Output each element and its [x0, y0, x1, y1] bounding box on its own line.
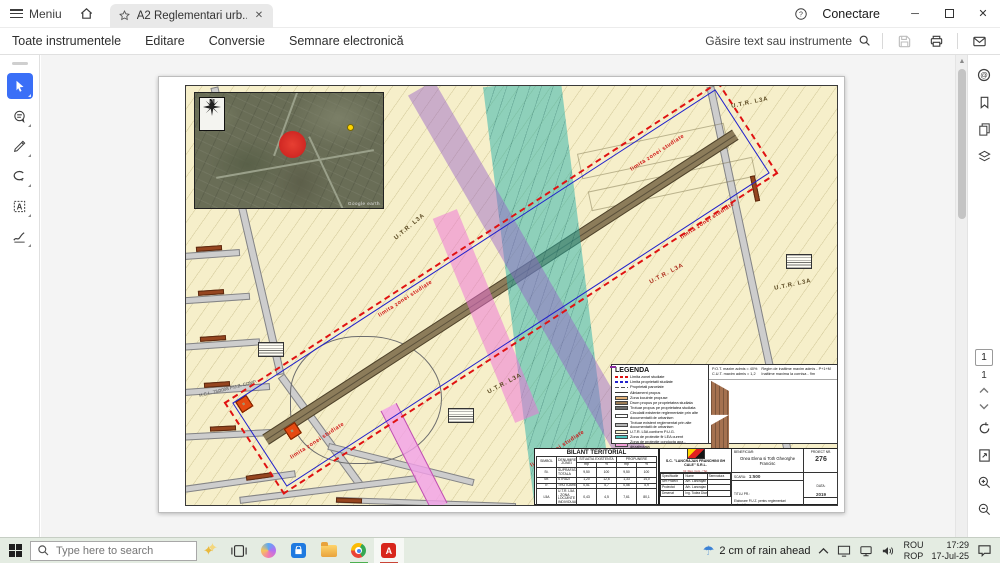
language-indicator[interactable]: ROU ROP	[903, 540, 923, 561]
bilant-cell: 100	[637, 468, 657, 477]
bookmark-icon	[977, 95, 992, 110]
spec-cell: Ing. Todea Diana	[684, 491, 707, 497]
tab-title: A2 Reglementari urb...	[137, 10, 247, 22]
legend-swatch	[615, 381, 628, 383]
legend-swatch	[615, 406, 628, 410]
chevron-up-icon	[979, 387, 989, 394]
meta-cell: DATA:2019 FAZA:P.U.Z. PLANSA NR.A2	[804, 473, 838, 506]
height-regime: Regim de inaltime maxim admis - P+1+M	[761, 367, 830, 371]
bilant-cell: U.T.R. L5A - ZONA LOCUINTE INDIVIDUALE	[557, 489, 577, 506]
project-number: 276	[804, 456, 838, 463]
task-view-button[interactable]	[224, 538, 254, 563]
title-cell: SCARA: 1:500 TITLU PR.: Elaborare P.U.Z.…	[732, 473, 804, 506]
layers-icon	[977, 149, 992, 164]
fit-page-button[interactable]	[972, 443, 996, 467]
date: 17-Jul-25	[931, 551, 969, 561]
plan-sheet: limita zonei studiate limita zonei studi…	[185, 85, 838, 506]
page-thumbnails-button[interactable]	[972, 117, 996, 141]
signatures-cell: SpecificatieNumeSemnaturaSef ProiectArh.…	[660, 473, 732, 506]
spec-row: DesenatIng. Todea Diana	[661, 491, 731, 497]
project-number-cell: PROIECT NR. 276	[804, 449, 838, 472]
speaker-icon[interactable]	[881, 545, 895, 557]
zoom-in-icon	[977, 475, 992, 490]
dimension-table	[258, 342, 284, 357]
bilant-row: St.SUPRAFATA TOTALA9,501009,50100	[537, 468, 657, 477]
help-icon: ?	[794, 7, 808, 21]
compass-star-icon	[203, 98, 221, 116]
acrobat-icon: A	[381, 543, 396, 558]
chrome-icon	[351, 543, 366, 558]
pencil-icon	[13, 139, 27, 153]
start-button[interactable]	[0, 538, 30, 563]
svg-text:?: ?	[799, 11, 803, 18]
cursor-icon	[13, 79, 27, 93]
save-button[interactable]	[893, 34, 915, 49]
find-label: Găsire text sau instrumente	[705, 34, 852, 48]
legend-swatch	[615, 435, 628, 439]
fill-sign-tool[interactable]	[7, 223, 33, 249]
menu-item-edit[interactable]: Editare	[133, 34, 197, 48]
scrollbar-thumb[interactable]	[958, 69, 966, 219]
action-center-icon[interactable]	[977, 544, 992, 557]
bilant-cell: 7,61	[617, 489, 637, 506]
firm-logo	[687, 448, 705, 459]
copilot-icon	[261, 543, 276, 558]
utr-label: U.T.R. L3A	[731, 96, 769, 110]
menu-item-esign[interactable]: Semnare electronică	[277, 34, 416, 48]
previous-page-button[interactable]	[972, 383, 996, 397]
site-marker	[279, 131, 306, 158]
legend-item: Proprietati parcelate	[615, 385, 706, 389]
text-box-icon: A	[12, 199, 27, 214]
svg-text:A: A	[17, 202, 23, 211]
comments-icon: @	[976, 67, 992, 83]
legend-list: LEGENDA Limita zonei studiateLimita prop…	[612, 365, 709, 443]
home-button[interactable]	[72, 0, 102, 28]
close-button[interactable]: ✕	[966, 0, 1000, 28]
weather-icon: ☂	[703, 543, 715, 559]
bilant-header: SIMBOL	[537, 457, 557, 468]
north-compass: N	[199, 97, 225, 131]
store-button[interactable]	[284, 538, 314, 563]
bilant-cell: 9,50	[577, 468, 597, 477]
street-label	[336, 498, 362, 504]
chrome-button[interactable]	[344, 538, 374, 563]
bilant-cell: 80,1	[637, 489, 657, 506]
legend-swatch	[615, 387, 628, 389]
spec-cell	[707, 491, 730, 497]
menu-item-convert[interactable]: Conversie	[197, 34, 277, 48]
search-icon	[37, 544, 50, 557]
menubar-right: Găsire text sau instrumente	[705, 33, 1000, 49]
email-icon	[972, 34, 987, 49]
find-tools-button[interactable]: Găsire text sau instrumente	[705, 34, 872, 48]
urbanism-indicators: P.O.T. maxim admis = 40% C.U.T. maxim ad…	[709, 365, 838, 380]
firm-cell: S.C. "LANCRAJAN FRANCHINI GH CALE" S.R.L…	[660, 449, 732, 472]
windows-taskbar: ✦ A ☂ 2 cm of rain ahead ROU	[0, 537, 1000, 563]
zoom-in-button[interactable]	[972, 470, 996, 494]
chevron-down-icon	[979, 403, 989, 410]
weather-widget[interactable]: ☂ 2 cm of rain ahead	[703, 543, 811, 559]
acrobat-button[interactable]: A	[374, 538, 404, 563]
titlebar: Meniu A2 Reglementari urb... ✕ ? Conecta…	[0, 0, 1000, 28]
legend-swatch	[615, 396, 628, 400]
save-icon	[897, 34, 912, 49]
legend-swatch	[615, 423, 628, 427]
display-icon[interactable]	[837, 545, 851, 557]
add-text-tool[interactable]: A	[7, 193, 33, 219]
bookmarks-panel-button[interactable]	[972, 90, 996, 114]
draw-tool[interactable]	[7, 133, 33, 159]
bilant-cell: SUPRAFATA TOTALA	[557, 468, 577, 477]
left-toolbar: A	[0, 55, 40, 537]
weather-text: 2 cm of rain ahead	[719, 545, 810, 557]
scale-value: 1:500	[749, 474, 761, 479]
bilant-row: L5AU.T.R. L5A - ZONA LOCUINTE INDIVIDUAL…	[537, 489, 657, 506]
select-tool[interactable]	[7, 73, 33, 99]
firm-name: S.C. "LANCRAJAN FRANCHINI GH CALE" S.R.L…	[661, 460, 730, 468]
max-height: Inaltime maxima la cornisa - 9m	[761, 372, 815, 376]
document-tab[interactable]: A2 Reglementari urb... ✕	[110, 4, 273, 28]
pot-value: P.O.T. maxim admis = 40%	[712, 367, 757, 371]
inset-road	[308, 136, 343, 209]
legend-swatch	[615, 443, 628, 447]
titlebar-right: ? Conectare ─ ✕	[794, 0, 1000, 28]
folder-icon	[321, 545, 337, 557]
map-watermark: Google earth	[348, 201, 380, 206]
location-inset-map: N Google earth	[194, 92, 384, 209]
fit-page-icon	[977, 448, 992, 463]
time: 17:29	[931, 540, 969, 550]
rotate-icon	[977, 421, 992, 436]
bilant-cell: L5A	[537, 489, 557, 506]
tray-chevron-icon[interactable]	[818, 547, 829, 555]
layers-panel-button[interactable]	[972, 144, 996, 168]
section-building	[711, 415, 729, 449]
legend-item: Trotuar existent reglementat prin alte d…	[615, 421, 706, 429]
store-icon	[291, 543, 306, 558]
divider	[882, 33, 883, 49]
date-value: 2019	[804, 492, 838, 497]
dimension-table	[786, 254, 812, 269]
beneficiary-name: Onea Elena si Toth Gheorghe Francisc	[734, 456, 801, 466]
help-button[interactable]: ?	[794, 7, 820, 21]
menu-item-all-tools[interactable]: Toate instrumentele	[0, 34, 133, 48]
bilant-cell: 4,5	[597, 489, 617, 506]
right-toolbar: @ 1 1	[967, 55, 1000, 537]
bilant-cell: 9,50	[617, 468, 637, 477]
legend-title: LEGENDA	[615, 367, 706, 374]
comment-icon	[12, 109, 27, 124]
rotate-page-button[interactable]	[972, 416, 996, 440]
taskbar-search[interactable]	[30, 541, 197, 561]
hamburger-icon	[10, 9, 23, 18]
section-building	[711, 381, 729, 415]
search-highlights-icon[interactable]: ✦	[203, 543, 214, 559]
print-icon	[929, 34, 944, 49]
windows-logo-icon	[9, 544, 22, 557]
legend-item: Circulatii existente reglementate prin a…	[615, 411, 706, 419]
copilot-button[interactable]	[254, 538, 284, 563]
legend-swatch	[615, 401, 628, 405]
search-icon	[858, 34, 872, 48]
legend-swatch	[615, 392, 628, 394]
page-total: 1	[968, 370, 1000, 381]
signature-icon	[12, 229, 27, 244]
minimize-button[interactable]: ─	[898, 0, 932, 28]
legend-panel: LEGENDA Limita zonei studiateLimita prop…	[611, 364, 838, 444]
maximize-button[interactable]	[932, 0, 966, 28]
clock[interactable]: 17:29 17-Jul-25	[931, 540, 969, 561]
legend-swatch	[615, 376, 628, 378]
legend-swatch	[615, 414, 628, 418]
pdf-page[interactable]: limita zonei studiate limita zonei studi…	[158, 76, 845, 513]
land-balance-table: BILANT TERITORIAL SIMBOLDENUMIREA ZONEIS…	[534, 448, 659, 505]
utr-label: U.T.R. L3A	[393, 213, 426, 242]
task-view-icon	[231, 544, 247, 558]
poi-marker	[347, 124, 354, 131]
pages-icon	[977, 122, 992, 137]
search-input[interactable]	[56, 545, 166, 557]
network-icon[interactable]	[859, 545, 873, 557]
page-number-input[interactable]: 1	[975, 349, 993, 366]
zoom-out-button[interactable]	[972, 497, 996, 521]
zoom-out-icon	[977, 502, 992, 517]
legend-label: Trotuar existent reglementat prin alte d…	[630, 421, 706, 429]
beneficiary-cell: BENEFICIAR: Onea Elena si Toth Gheorghe …	[732, 449, 804, 472]
lasso-tool[interactable]	[7, 163, 33, 189]
menubar: Toate instrumentele Editare Conversie Se…	[0, 28, 1000, 55]
system-tray: ROU ROP 17:29 17-Jul-25	[818, 540, 992, 561]
menu-label: Meniu	[29, 7, 62, 21]
star-icon[interactable]	[118, 9, 131, 22]
divider	[957, 33, 958, 49]
svg-text:@: @	[980, 71, 988, 80]
legend-label: Circulatii existente reglementate prin a…	[630, 411, 706, 419]
connect-link[interactable]: Conectare	[822, 7, 880, 21]
pinned-apps: A	[224, 538, 404, 563]
project-title: Elaborare P.U.Z. pentru reglementari urb…	[734, 500, 801, 506]
desktop: { "titlebar": { "menu_label": "Meniu", "…	[0, 0, 1000, 563]
legend-section-panel: P.O.T. maxim admis = 40% C.U.T. maxim ad…	[709, 365, 838, 443]
add-comment-tool[interactable]	[7, 103, 33, 129]
title-block: S.C. "LANCRAJAN FRANCHINI GH CALE" S.R.L…	[659, 448, 838, 505]
legend-swatch	[615, 430, 628, 434]
next-page-button[interactable]	[972, 399, 996, 413]
utr-label-red: U.T.R. L3A	[649, 263, 685, 286]
cut-value: C.U.T. maxim admis = 1,2	[712, 372, 756, 376]
spec-cell: Desenat	[661, 491, 684, 497]
home-icon	[79, 6, 94, 21]
bilant-cell: St.	[537, 468, 557, 477]
menu-button[interactable]: Meniu	[0, 0, 72, 28]
bilant-header: DENUMIREA ZONEI	[557, 457, 577, 468]
legend-label: Proprietati parcelate	[630, 385, 664, 389]
bilant-cell: 100	[597, 468, 617, 477]
tab-close-icon[interactable]: ✕	[253, 10, 265, 21]
bilant-cell: 0,43	[577, 489, 597, 506]
maximize-icon	[945, 9, 954, 18]
file-explorer-button[interactable]	[314, 538, 344, 563]
utr-label: U.T.R. L3A	[774, 278, 812, 292]
taskbar-right: ☂ 2 cm of rain ahead ROU ROP 17:29 17-Ju…	[703, 540, 1000, 561]
lasso-icon	[12, 169, 27, 184]
dimension-table	[448, 408, 474, 423]
toolbar-drag-handle[interactable]	[12, 62, 28, 65]
vertical-scrollbar[interactable]: ▲	[955, 55, 967, 537]
print-button[interactable]	[925, 34, 947, 49]
comments-panel-button[interactable]: @	[972, 63, 996, 87]
email-button[interactable]	[968, 34, 990, 49]
